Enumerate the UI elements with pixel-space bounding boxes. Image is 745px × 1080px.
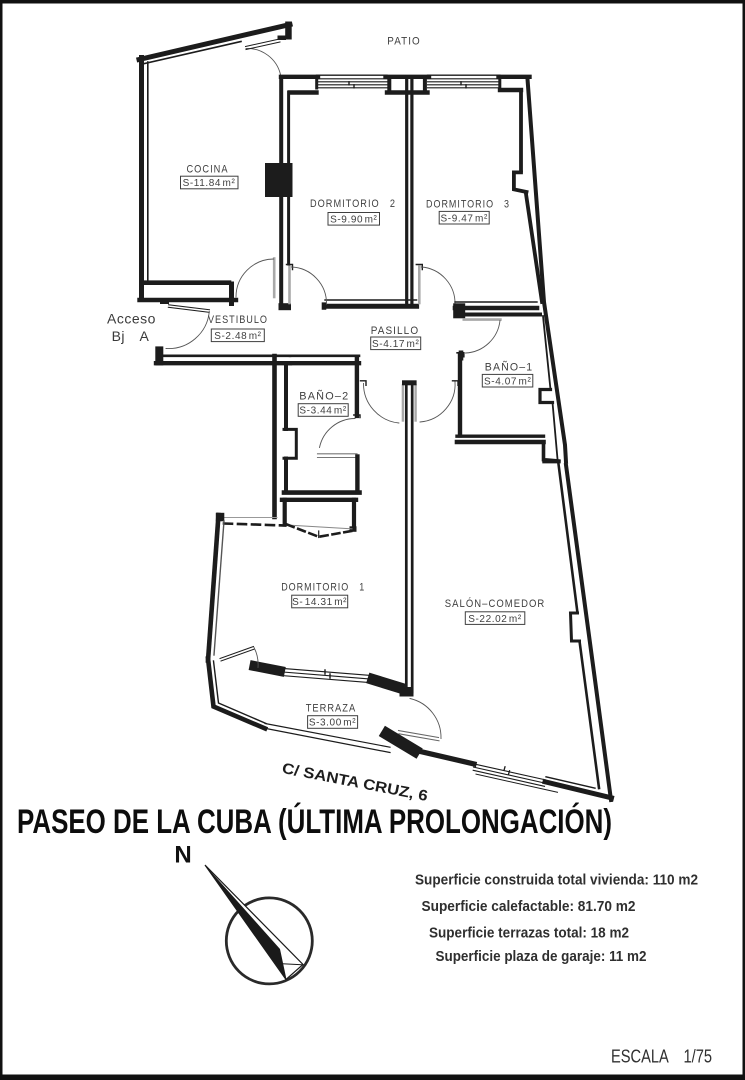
svg-text:PASILLO: PASILLO bbox=[371, 325, 420, 337]
svg-text:Superficie calefactable: 81.70: Superficie calefactable: 81.70 m2 bbox=[422, 899, 636, 915]
svg-text:S- 14.31 m²: S- 14.31 m² bbox=[292, 597, 347, 608]
svg-text:COCINA: COCINA bbox=[187, 164, 229, 176]
svg-text:Superficie terrazas total: 18: Superficie terrazas total: 18 m2 bbox=[429, 926, 629, 942]
svg-text:DORMITORIO 1: DORMITORIO 1 bbox=[281, 582, 365, 594]
svg-text:S-9.90 m²: S-9.90 m² bbox=[330, 215, 377, 226]
svg-text:BAÑO–2: BAÑO–2 bbox=[299, 390, 349, 403]
svg-text:ESCALA 1/75: ESCALA 1/75 bbox=[611, 1046, 712, 1067]
svg-text:Superficie plaza de garaje: 11: Superficie plaza de garaje: 11 m2 bbox=[436, 949, 647, 965]
svg-text:BAÑO–1: BAÑO–1 bbox=[485, 361, 534, 374]
svg-text:DORMITORIO 3: DORMITORIO 3 bbox=[426, 199, 510, 211]
svg-text:TERRAZA: TERRAZA bbox=[306, 703, 357, 715]
svg-text:S-4.17 m²: S-4.17 m² bbox=[372, 339, 419, 350]
svg-text:Superficie construida total vi: Superficie construida total vivienda: 11… bbox=[415, 873, 698, 889]
svg-text:S-11.84 m²: S-11.84 m² bbox=[183, 178, 236, 189]
svg-text:DORMITORIO 2: DORMITORIO 2 bbox=[310, 198, 396, 210]
svg-text:S-4.07 m²: S-4.07 m² bbox=[484, 376, 531, 387]
svg-text:Bj A: Bj A bbox=[112, 328, 150, 344]
svg-text:S-22.02 m²: S-22.02 m² bbox=[468, 614, 522, 625]
svg-text:S-3.44 m²: S-3.44 m² bbox=[299, 406, 346, 417]
svg-text:S-2.48 m²: S-2.48 m² bbox=[214, 331, 261, 342]
svg-text:PASEO DE LA CUBA (ÚLTIMA PROLO: PASEO DE LA CUBA (ÚLTIMA PROLONGACIÓN) bbox=[17, 803, 612, 841]
svg-text:N: N bbox=[174, 842, 191, 869]
svg-text:SALÓN–COMEDOR: SALÓN–COMEDOR bbox=[445, 597, 546, 610]
svg-text:S-3.00 m²: S-3.00 m² bbox=[309, 718, 356, 729]
svg-text:PATIO: PATIO bbox=[387, 36, 421, 48]
svg-text:VESTIBULO: VESTIBULO bbox=[208, 314, 268, 326]
svg-text:S-9.47 m²: S-9.47 m² bbox=[441, 213, 488, 224]
svg-text:Acceso: Acceso bbox=[107, 311, 156, 327]
